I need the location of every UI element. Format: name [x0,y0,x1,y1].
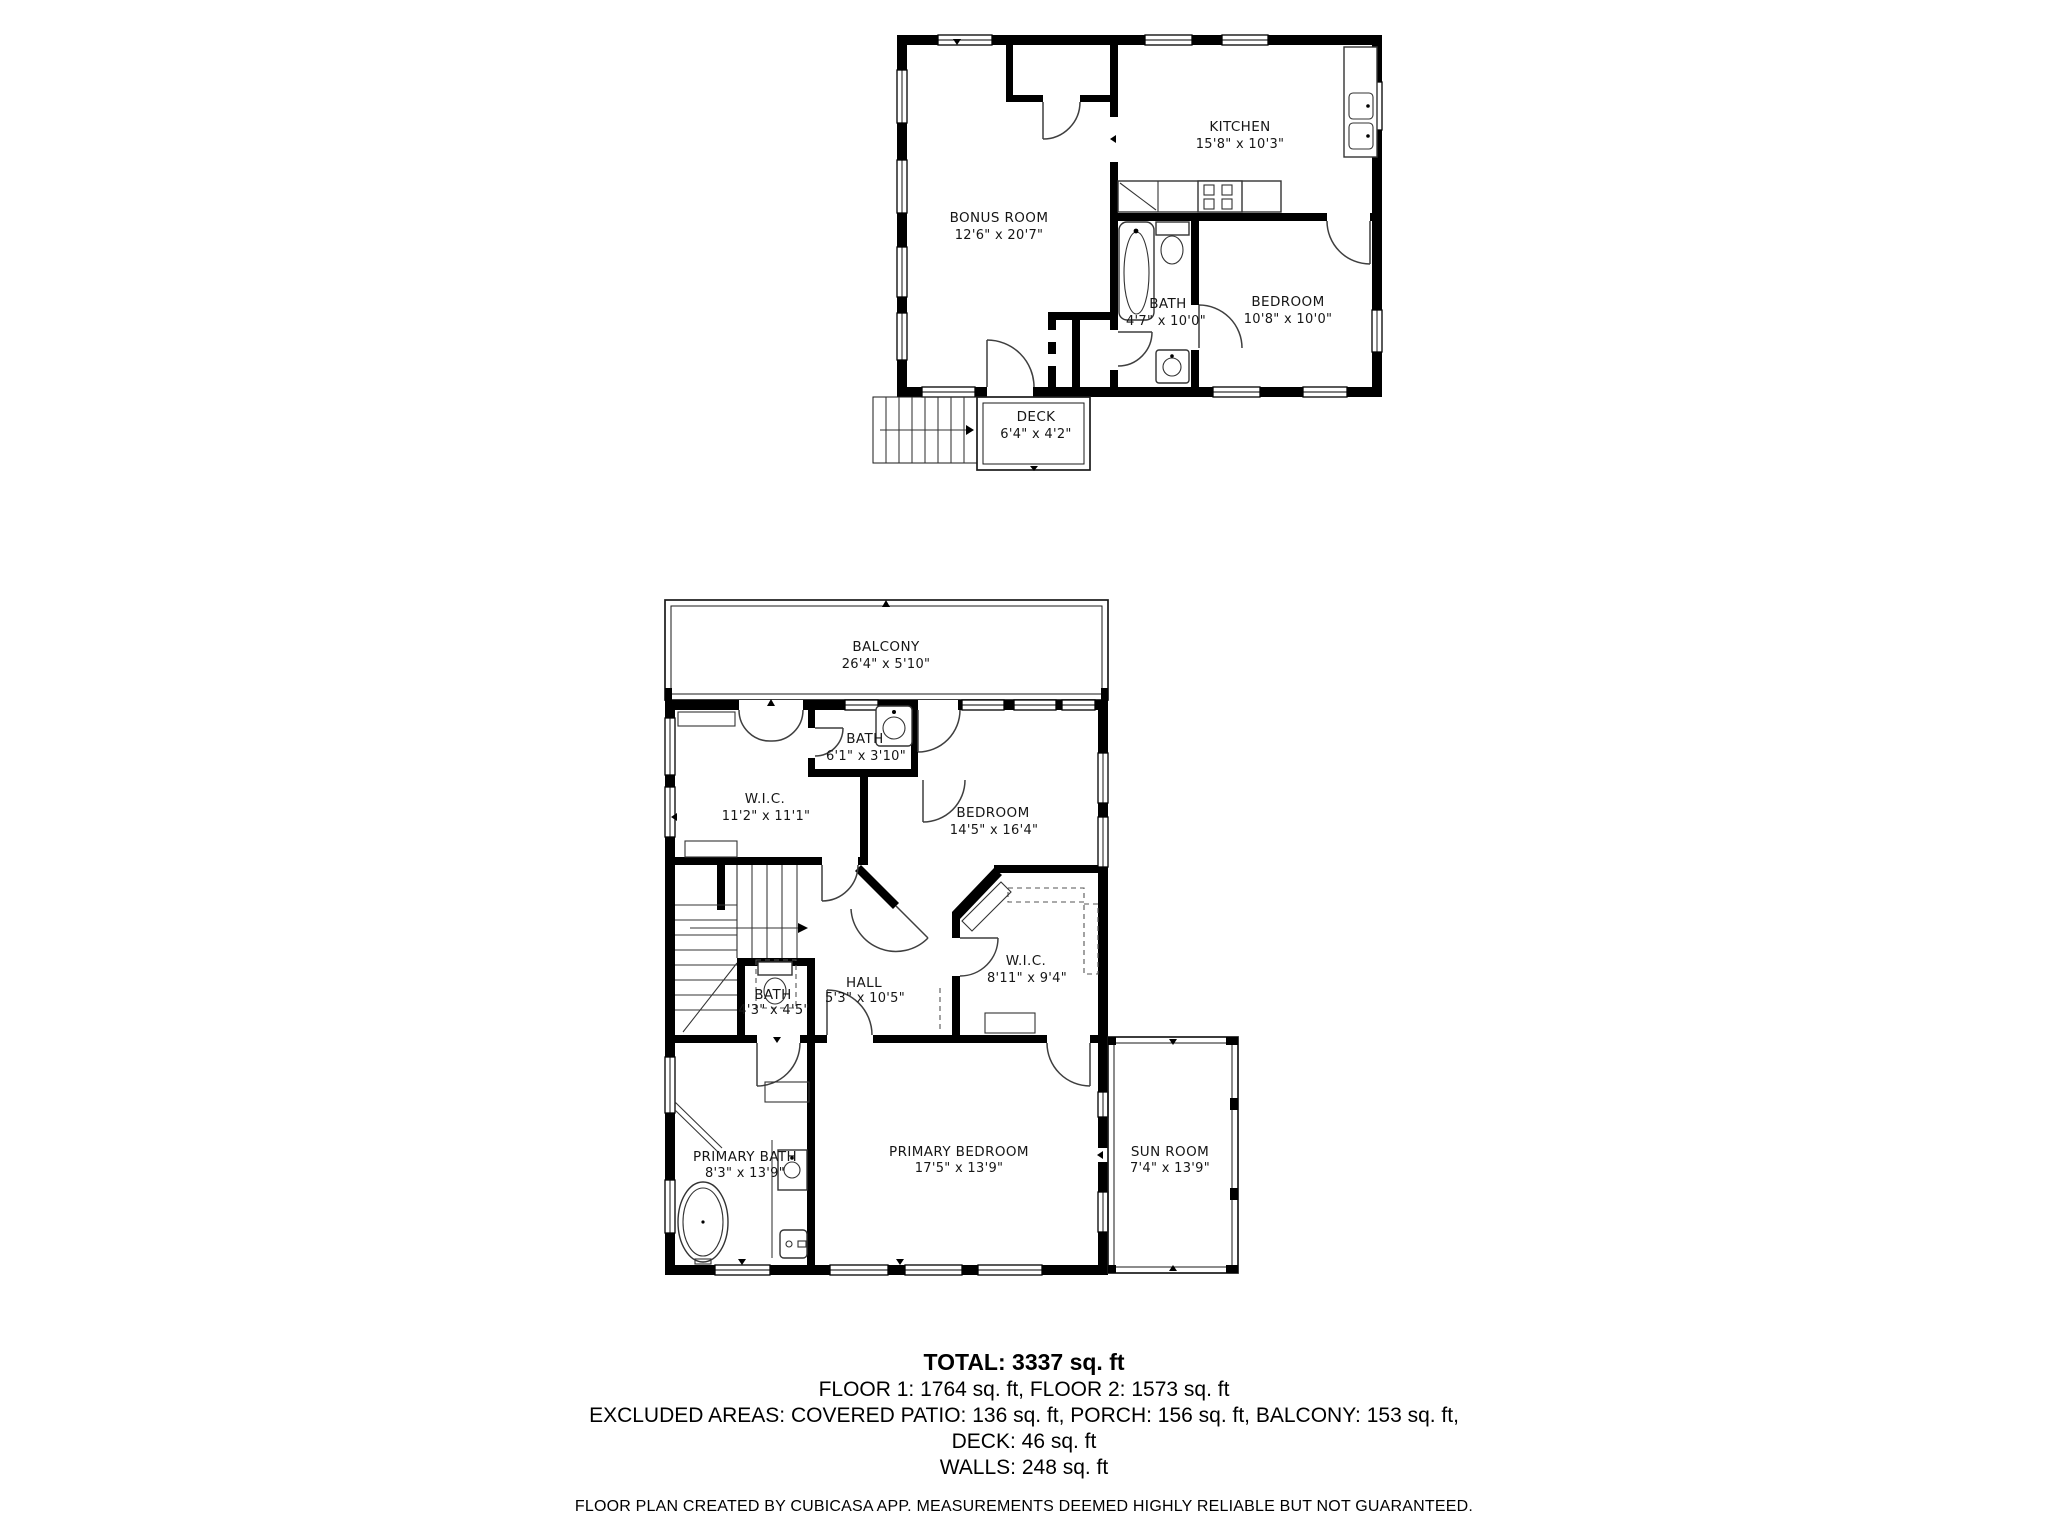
room-dims-bath-upper: 6'1" x 3'10" [826,749,906,764]
room-dims-primary-bath: 8'3" x 13'9" [705,1166,785,1181]
room-dims-primary-bedroom: 17'5" x 13'9" [915,1161,1004,1176]
floor1-windows [665,700,1108,1275]
room-label-bedroom-floor1: BEDROOM [956,805,1029,821]
total-area-text: TOTAL: 3337 sq. ft [0,1349,2048,1376]
room-dims-wic-right: 8'11" x 9'4" [987,971,1067,986]
floor1-labels: BALCONY 26'4" x 5'10" BATH 6'1" x 3'10" … [693,639,1210,1181]
room-dims-bath-small: 4'3" x 4'5" [738,1003,809,1018]
room-label-bath-upper: BATH [846,731,883,747]
room-dims-sun-room: 7'4" x 13'9" [1130,1161,1210,1176]
stove-icon [1198,181,1242,212]
room-dims-bedroom-floor1: 14'5" x 16'4" [950,823,1039,838]
floor-plan-page: BONUS ROOM 12'6" x 20'7" KITCHEN 15'8" x… [0,0,2048,1536]
floor2-doors [987,102,1370,387]
room-dims-hall: 5'3" x 10'5" [825,991,905,1006]
room-label-bath-floor2: BATH [1149,296,1186,312]
room-label-hall: HALL [846,975,882,991]
room-label-bath-small: BATH [754,987,791,1003]
room-dims-bedroom-floor2: 10'8" x 10'0" [1244,312,1333,327]
room-label-wic-left: W.I.C. [745,791,785,807]
room-label-primary-bedroom: PRIMARY BEDROOM [889,1144,1029,1160]
room-label-wic-right: W.I.C. [1006,953,1046,969]
room-dims-bath-floor2: 4'7" x 10'0" [1126,314,1206,329]
floor-areas-text: FLOOR 1: 1764 sq. ft, FLOOR 2: 1573 sq. … [0,1378,2048,1402]
room-dims-kitchen: 15'8" x 10'3" [1196,137,1285,152]
primary-toilet-icon [780,1230,807,1258]
room-label-primary-bath: PRIMARY BATH [693,1149,797,1165]
toilet-icon [1156,222,1189,264]
floor-plan-canvas: BONUS ROOM 12'6" x 20'7" KITCHEN 15'8" x… [0,0,2048,1536]
room-dims-balcony: 26'4" x 5'10" [842,657,931,672]
walls-area-text: WALLS: 248 sq. ft [0,1456,2048,1480]
room-label-bedroom-floor2: BEDROOM [1251,294,1324,310]
room-dims-bonus-room: 12'6" x 20'7" [955,228,1044,243]
room-label-deck: DECK [1017,409,1057,425]
room-label-bonus-room: BONUS ROOM [950,210,1049,226]
floor1-walls [665,700,1108,1275]
excluded-areas-text: EXCLUDED AREAS: COVERED PATIO: 136 sq. f… [0,1404,2048,1428]
room-label-balcony: BALCONY [852,639,920,655]
primary-bath-fixtures [675,1102,807,1264]
disclaimer-text: FLOOR PLAN CREATED BY CUBICASA APP. MEAS… [0,1498,2048,1516]
room-dims-wic-left: 11'2" x 11'1" [722,809,811,824]
room-label-sun-room: SUN ROOM [1131,1144,1209,1160]
kitchen-sink-icon [1344,47,1377,157]
deck-area-text: DECK: 46 sq. ft [0,1430,2048,1454]
room-dims-deck: 6'4" x 4'2" [1000,427,1071,442]
room-label-kitchen: KITCHEN [1209,119,1270,135]
floor2-plan: BONUS ROOM 12'6" x 20'7" KITCHEN 15'8" x… [873,35,1382,471]
bath-sink-icon [1156,350,1189,383]
floor1-plan: BALCONY 26'4" x 5'10" BATH 6'1" x 3'10" … [665,600,1238,1275]
floor2-marks [953,39,1116,143]
freestanding-tub-icon [678,1182,728,1264]
